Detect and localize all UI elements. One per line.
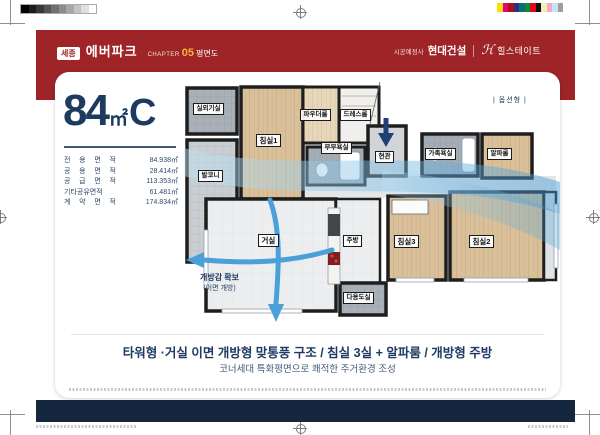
hillstate-brand: 힐스테이트 [497, 44, 541, 57]
registration-mark [0, 210, 7, 224]
table-row: 공 급 면 적 113.353㎡ [64, 177, 178, 188]
footer-divider [71, 334, 544, 335]
region-badge: 세종 [57, 47, 80, 60]
calibration-swatch [558, 3, 564, 12]
header-left: 세종 에버파크 CHAPTER 05 평면도 [57, 41, 218, 60]
crop-mark [589, 0, 590, 25]
area-value: 113.353㎡ [146, 177, 178, 188]
plan-headline: 타워형 ·거실 이면 개방형 맞통풍 구조 / 침실 3실 + 알파룸 / 개방… [55, 342, 560, 361]
area-table: 전 용 면 적 84.938㎡ 공 용 면 적 28.414㎡ 공 급 면 적 … [64, 156, 178, 209]
room-label-utility-room: 다용도실 [343, 292, 374, 304]
room-label-living-room: 거실 [258, 234, 279, 247]
hillstate-logo-icon: ℋ [481, 43, 494, 58]
area-value: 28.414㎡ [150, 167, 178, 178]
unit-size-number: 84 [63, 86, 108, 135]
builder-prefix: 시공예정사 [394, 46, 424, 56]
disclaimer-micro-text [69, 388, 546, 391]
footer-navy-band [36, 400, 575, 422]
header-divider [473, 45, 474, 57]
unit-size-title: 84㎡C [63, 86, 156, 136]
calibration-swatch [74, 5, 82, 13]
cmyk-calibration-bar [497, 3, 563, 12]
area-value: 174.834㎡ [146, 198, 178, 209]
room-label-bedroom1: 침실1 [256, 134, 281, 147]
content-card: 84㎡C 전 용 면 적 84.938㎡ 공 용 면 적 28.414㎡ 공 급… [55, 72, 560, 398]
room-label-balcony: 발코니 [198, 170, 223, 182]
calibration-swatch [89, 5, 97, 13]
builder-name: 현대건설 [428, 43, 467, 58]
area-label: 계 약 면 적 [64, 198, 116, 209]
floor-plan: 실외기실 발코니 침실1 파우더룸 드레스룸 부부욕실 현관 가족욕실 알파룸 … [182, 82, 562, 334]
calibration-swatch [21, 5, 29, 13]
crop-mark [0, 414, 25, 415]
area-label: 공 급 면 적 [64, 177, 116, 188]
room-label-bedroom2: 침실2 [469, 235, 494, 248]
room-label-outdoor-unit: 실외기실 [193, 103, 224, 115]
area-label: 공 용 면 적 [64, 167, 116, 178]
area-value: 84.938㎡ [150, 156, 178, 167]
crop-mark [0, 23, 25, 24]
crop-mark [575, 414, 600, 415]
room-label-alpha-room: 알파룸 [487, 148, 512, 160]
registration-mark [293, 5, 307, 19]
table-row: 계 약 면 적 174.834㎡ [64, 198, 178, 209]
unit-size-type: C [129, 92, 156, 134]
crop-mark [575, 23, 600, 24]
crop-mark [10, 0, 11, 25]
room-label-kitchen: 주방 [343, 235, 362, 247]
room-label-powder-room: 파우더룸 [300, 109, 331, 121]
room-label-bedroom3: 침실3 [394, 235, 419, 248]
airflow-note: 개방감 확보 (이면 개방) [200, 272, 239, 293]
area-label: 기타공유면적 [64, 188, 116, 199]
chapter-label: CHAPTER [148, 52, 180, 58]
micro-print-info-right [528, 425, 568, 428]
header-right: 시공예정사 현대건설 ℋ 힐스테이트 [394, 43, 541, 58]
chapter-number: 05 [182, 47, 194, 59]
calibration-swatch [66, 5, 74, 13]
grayscale-calibration-bar [20, 4, 97, 14]
room-label-family-bathroom: 가족욕실 [425, 148, 456, 160]
room-label-master-bathroom: 부부욕실 [321, 142, 352, 154]
registration-mark [293, 421, 307, 435]
room-label-entrance: 현관 [375, 151, 394, 163]
room-label-dress-room: 드레스룸 [340, 109, 371, 121]
project-name: 에버파크 [86, 41, 138, 60]
table-row: 공 용 면 적 28.414㎡ [64, 167, 178, 178]
chapter-title: 평면도 [196, 48, 218, 59]
micro-print-info-left [36, 425, 136, 428]
calibration-swatch [59, 5, 67, 13]
airflow-note-line2: (이면 개방) [200, 283, 239, 293]
table-row: 전 용 면 적 84.938㎡ [64, 156, 178, 167]
size-divider [64, 146, 176, 148]
calibration-swatch [44, 5, 52, 13]
brochure-page: 세종 에버파크 CHAPTER 05 평면도 시공예정사 현대건설 ℋ 힐스테이… [36, 30, 575, 422]
airflow-note-line1: 개방감 확보 [200, 272, 239, 283]
area-value: 61.481㎡ [150, 188, 178, 199]
table-row: 기타공유면적 61.481㎡ [64, 188, 178, 199]
unit-size-unit: ㎡ [109, 109, 128, 130]
plan-subline: 코너세대 특화평면으로 쾌적한 주거환경 조성 [55, 361, 560, 375]
registration-mark [586, 210, 600, 224]
calibration-swatch [81, 5, 89, 13]
calibration-swatch [51, 5, 59, 13]
area-label: 전 용 면 적 [64, 156, 116, 167]
calibration-swatch [36, 5, 44, 13]
calibration-swatch [29, 5, 37, 13]
